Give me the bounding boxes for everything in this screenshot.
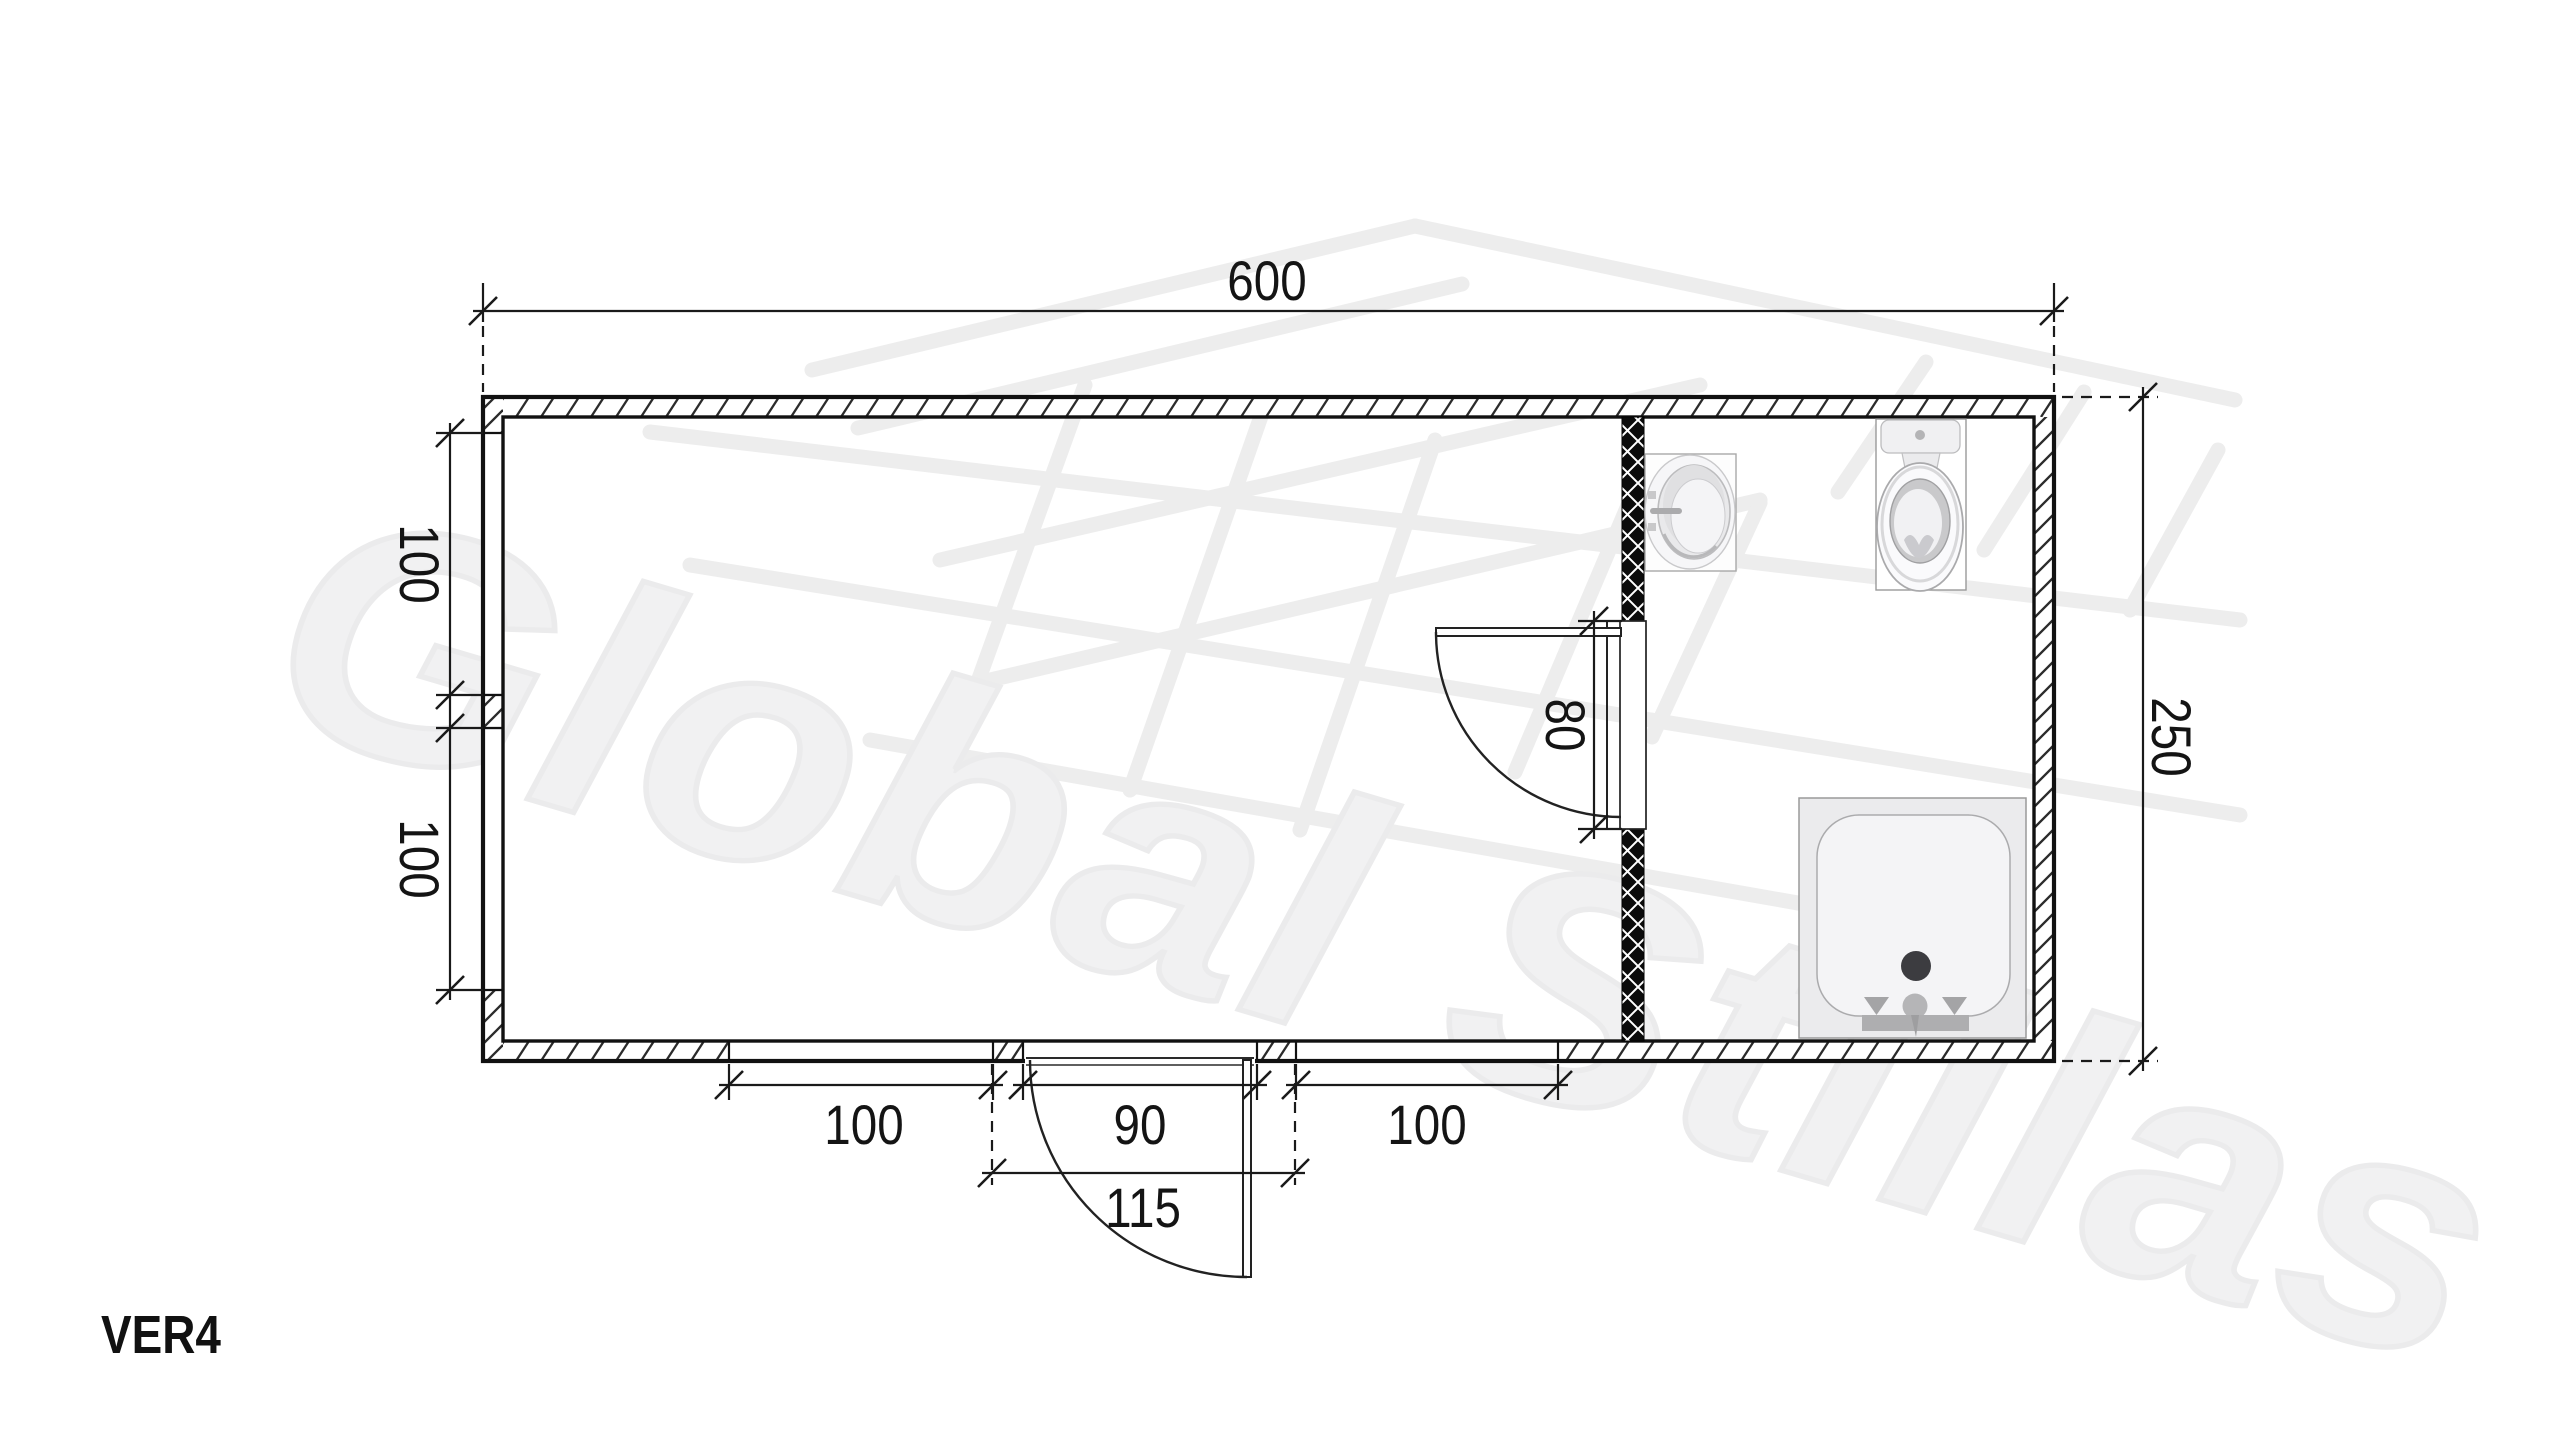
svg-text:115: 115 [1105, 1177, 1181, 1239]
svg-text:250: 250 [2139, 697, 2201, 776]
svg-text:80: 80 [1533, 699, 1595, 752]
svg-text:600: 600 [1227, 250, 1306, 312]
svg-text:100: 100 [1387, 1094, 1466, 1156]
svg-text:100: 100 [387, 524, 449, 603]
svg-text:90: 90 [1114, 1094, 1167, 1156]
svg-text:100: 100 [387, 819, 449, 898]
svg-text:VER4: VER4 [101, 1305, 221, 1365]
svg-text:100: 100 [824, 1094, 903, 1156]
